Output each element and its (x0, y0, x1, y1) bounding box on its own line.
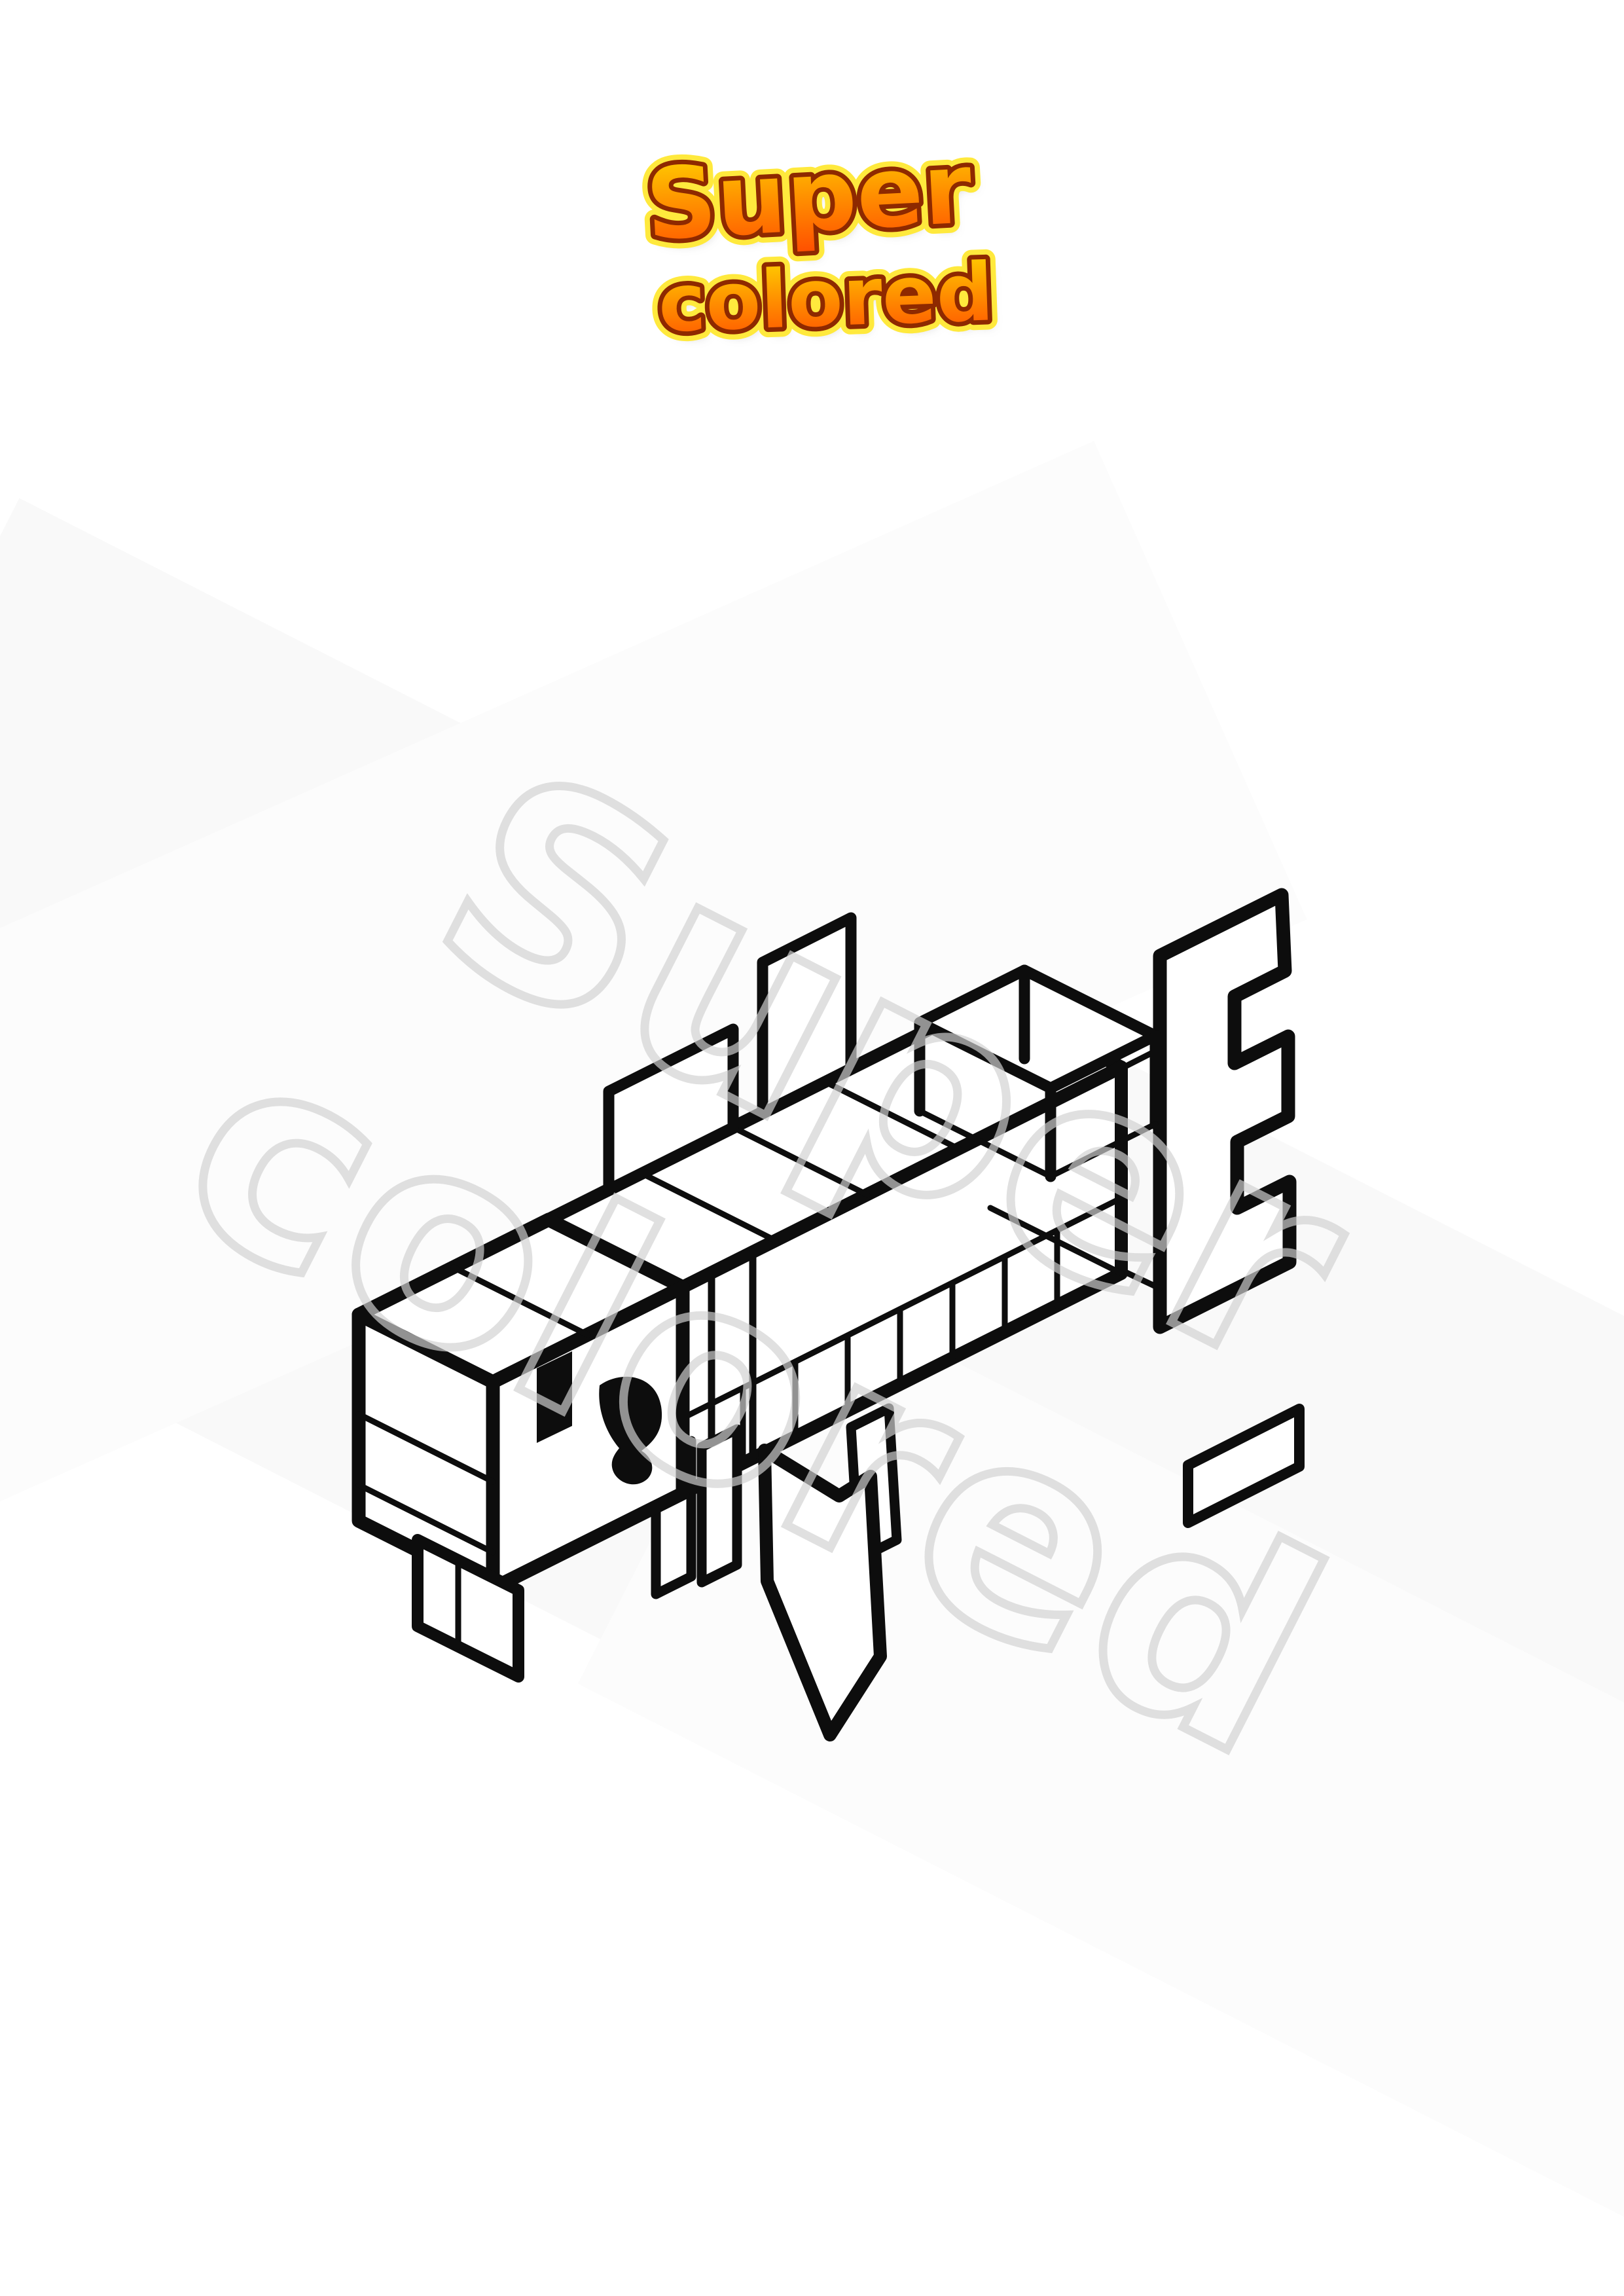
coloring-page: Super colored Super colored Super colore… (0, 0, 1624, 2296)
logo-fill: Super colored (643, 132, 995, 350)
logo-text-line2: colored (657, 246, 995, 350)
page-canvas: Super colored Super colored Super colore… (0, 0, 1624, 2296)
site-logo: Super colored Super colored Super colore… (643, 132, 1000, 358)
logo-text-line1: Super (643, 132, 974, 263)
